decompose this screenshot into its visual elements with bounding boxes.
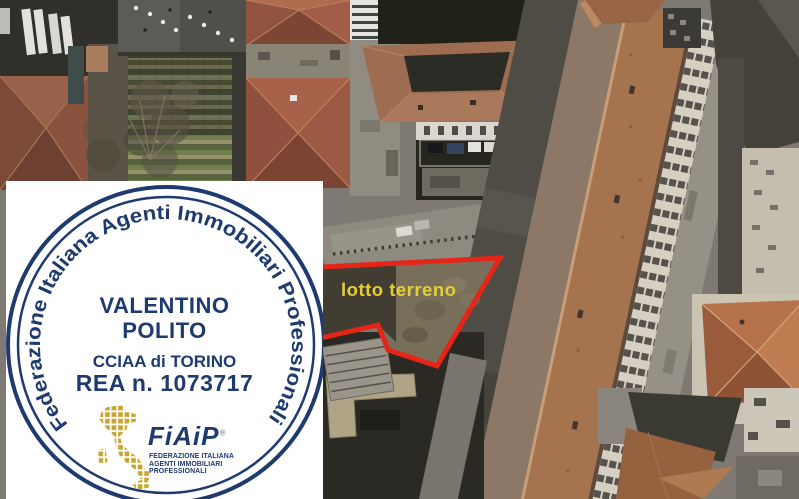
roof-top-center <box>118 0 246 56</box>
registered-mark: ® <box>219 428 226 437</box>
agent-last-name: POLITO <box>6 320 323 342</box>
wall-shadow-strip <box>232 44 248 190</box>
bottom-right-blocks <box>598 388 799 499</box>
tagline-line: FEDERAZIONE ITALIANA <box>149 453 234 461</box>
red-pavilion-mid <box>246 78 350 188</box>
agent-stamp: Federazione Italiana Agenti Immobiliari … <box>6 181 323 499</box>
car-blue <box>447 143 464 154</box>
listing-photo: lotto terreno Federazione Italiana Agent… <box>0 0 799 499</box>
car-white <box>468 142 481 152</box>
inner-courtyard-strip <box>246 44 352 80</box>
fiaip-wordmark: FiAiP® <box>148 423 226 449</box>
shed-roof <box>322 337 394 400</box>
right-blocks-top <box>710 0 799 306</box>
registry-line: CCIAA di TORINO <box>6 353 323 370</box>
car-dark <box>428 143 443 153</box>
lot-label: lotto terreno <box>341 279 456 300</box>
rea-number: REA n. 1073717 <box>6 372 323 395</box>
fiaip-logo: FiAiP® FEDERAZIONE ITALIANA AGENTI IMMOB… <box>86 403 256 499</box>
fiaip-tagline: FEDERAZIONE ITALIANA AGENTI IMMOBILIARI … <box>149 453 234 476</box>
red-pavilion-top <box>246 0 352 46</box>
tagline-line: AGENTI IMMOBILIARI <box>149 461 234 469</box>
tagline-line: PROFESSIONALI <box>149 468 234 476</box>
agent-first-name: VALENTINO <box>6 295 323 317</box>
